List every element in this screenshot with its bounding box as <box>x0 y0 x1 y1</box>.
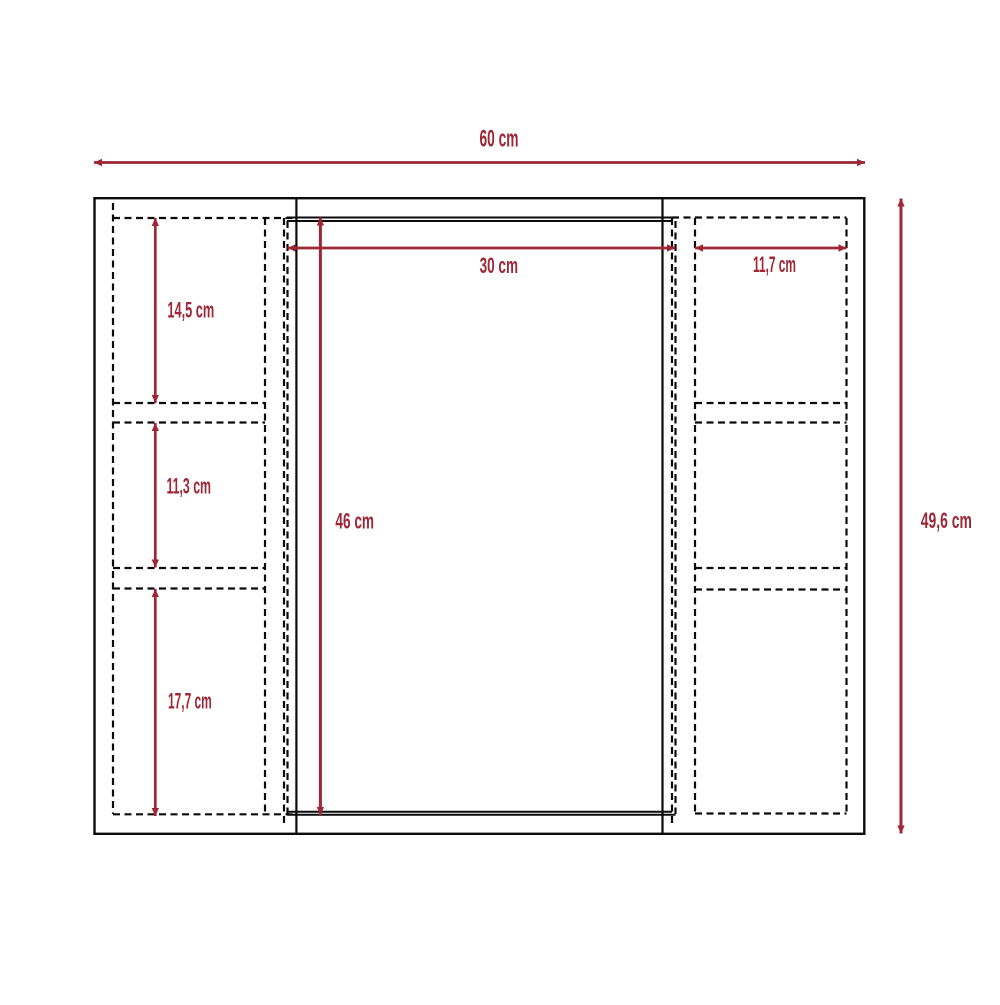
svg-text:30 cm: 30 cm <box>480 253 518 278</box>
svg-text:14,5 cm: 14,5 cm <box>167 298 214 323</box>
svg-text:17,7 cm: 17,7 cm <box>168 689 212 714</box>
svg-text:46 cm: 46 cm <box>335 508 374 533</box>
svg-text:49,6 cm: 49,6 cm <box>921 508 972 533</box>
svg-text:11,7 cm: 11,7 cm <box>753 252 796 277</box>
svg-text:60 cm: 60 cm <box>480 126 519 153</box>
svg-text:11,3 cm: 11,3 cm <box>167 474 212 499</box>
